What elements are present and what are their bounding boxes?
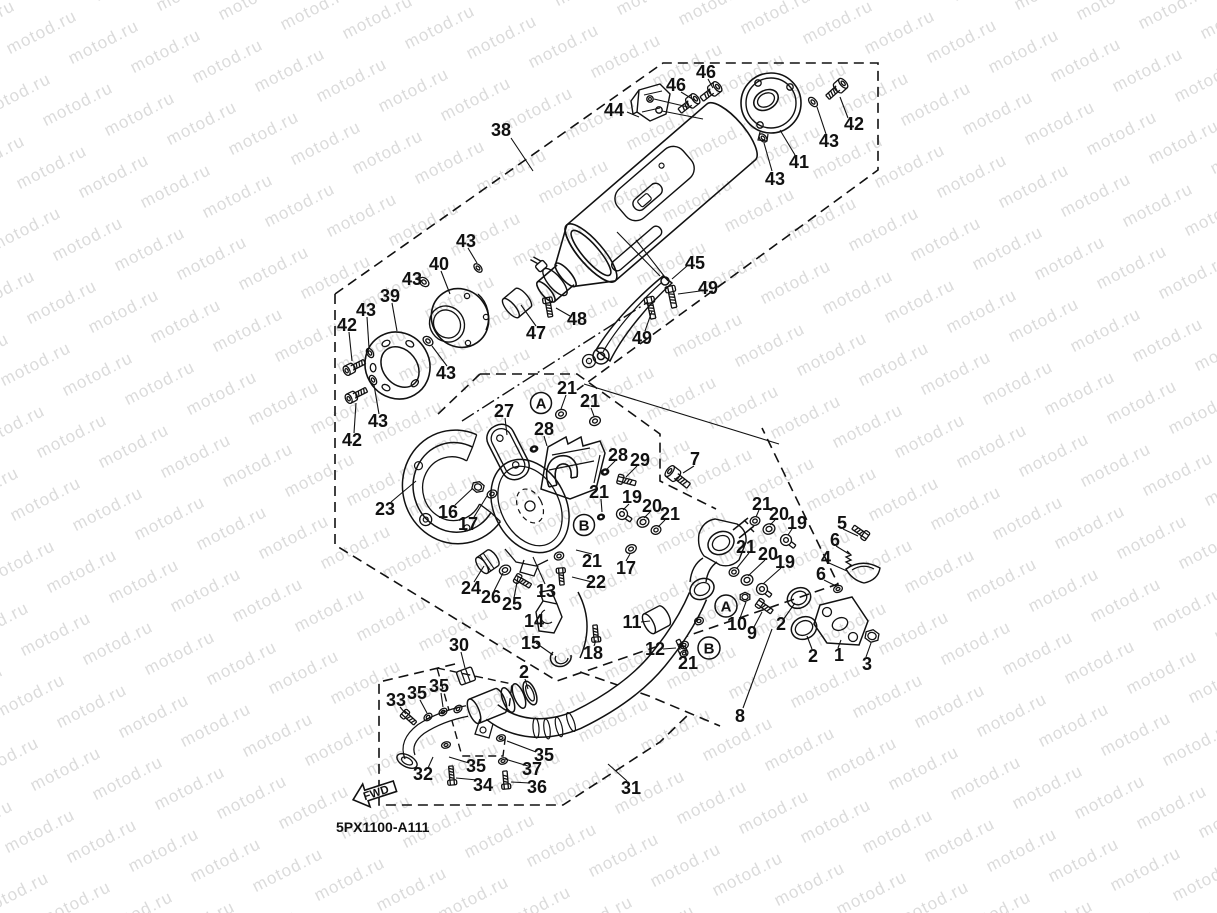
- svg-text:21: 21: [736, 537, 756, 557]
- svg-text:15: 15: [521, 633, 541, 653]
- svg-text:35: 35: [429, 676, 449, 696]
- svg-text:41: 41: [789, 152, 809, 172]
- svg-text:21: 21: [582, 551, 602, 571]
- svg-text:32: 32: [413, 764, 433, 784]
- svg-text:21: 21: [678, 653, 698, 673]
- svg-text:35: 35: [466, 756, 486, 776]
- svg-text:34: 34: [473, 775, 493, 795]
- svg-text:A: A: [536, 396, 547, 413]
- svg-text:7: 7: [690, 449, 700, 469]
- svg-text:49: 49: [698, 278, 718, 298]
- svg-text:6: 6: [816, 564, 826, 584]
- svg-text:36: 36: [527, 777, 547, 797]
- svg-text:25: 25: [502, 594, 522, 614]
- svg-text:B: B: [579, 518, 590, 535]
- svg-text:42: 42: [342, 430, 362, 450]
- svg-text:48: 48: [567, 309, 587, 329]
- svg-text:29: 29: [630, 450, 650, 470]
- svg-text:22: 22: [586, 572, 606, 592]
- svg-text:6: 6: [830, 530, 840, 550]
- svg-text:40: 40: [429, 254, 449, 274]
- svg-text:18: 18: [583, 643, 603, 663]
- svg-text:21: 21: [580, 391, 600, 411]
- svg-text:46: 46: [666, 75, 686, 95]
- svg-text:33: 33: [386, 690, 406, 710]
- svg-text:19: 19: [622, 487, 642, 507]
- svg-text:11: 11: [622, 612, 641, 632]
- svg-text:44: 44: [604, 100, 624, 120]
- svg-text:26: 26: [481, 587, 501, 607]
- svg-text:1: 1: [834, 645, 844, 665]
- svg-text:14: 14: [524, 611, 544, 631]
- svg-text:21: 21: [557, 378, 577, 398]
- svg-text:24: 24: [461, 578, 481, 598]
- svg-text:45: 45: [685, 253, 705, 273]
- svg-text:5PX1100-A111: 5PX1100-A111: [336, 819, 430, 835]
- svg-text:8: 8: [735, 706, 745, 726]
- svg-text:43: 43: [456, 231, 476, 251]
- svg-text:2: 2: [808, 646, 818, 666]
- svg-text:47: 47: [526, 323, 546, 343]
- svg-text:38: 38: [491, 120, 511, 140]
- svg-text:3: 3: [862, 654, 872, 674]
- svg-text:43: 43: [356, 300, 376, 320]
- svg-text:27: 27: [494, 401, 514, 421]
- svg-text:43: 43: [765, 169, 785, 189]
- svg-text:13: 13: [536, 581, 556, 601]
- svg-text:46: 46: [696, 62, 716, 82]
- svg-text:A: A: [721, 599, 732, 616]
- svg-text:2: 2: [776, 614, 786, 634]
- svg-text:43: 43: [402, 269, 422, 289]
- svg-text:12: 12: [645, 639, 665, 659]
- svg-text:30: 30: [449, 635, 469, 655]
- svg-text:49: 49: [632, 328, 652, 348]
- svg-text:43: 43: [368, 411, 388, 431]
- svg-text:28: 28: [608, 445, 628, 465]
- svg-text:43: 43: [819, 131, 839, 151]
- svg-text:35: 35: [407, 683, 427, 703]
- svg-text:16: 16: [438, 502, 458, 522]
- svg-text:19: 19: [787, 513, 807, 533]
- svg-text:21: 21: [660, 504, 680, 524]
- svg-text:9: 9: [747, 623, 757, 643]
- svg-text:31: 31: [621, 778, 641, 798]
- svg-text:42: 42: [337, 315, 357, 335]
- svg-text:37: 37: [522, 759, 542, 779]
- svg-text:17: 17: [458, 514, 478, 534]
- svg-text:10: 10: [727, 614, 747, 634]
- svg-text:23: 23: [375, 499, 395, 519]
- svg-text:39: 39: [380, 286, 400, 306]
- svg-text:21: 21: [589, 482, 609, 502]
- svg-text:28: 28: [534, 419, 554, 439]
- svg-text:2: 2: [519, 662, 529, 682]
- svg-text:43: 43: [436, 363, 456, 383]
- svg-text:17: 17: [616, 558, 636, 578]
- svg-text:19: 19: [775, 552, 795, 572]
- svg-text:B: B: [704, 641, 715, 658]
- svg-text:42: 42: [844, 114, 864, 134]
